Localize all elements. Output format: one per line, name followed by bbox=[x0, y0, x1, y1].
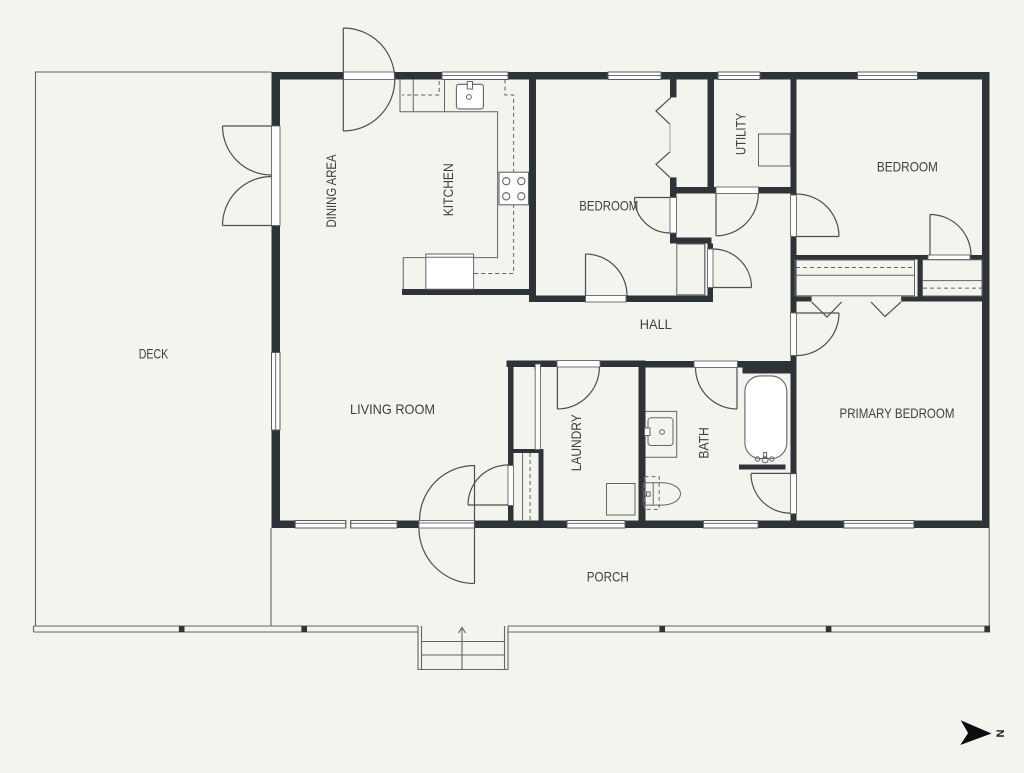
svg-text:BEDROOM: BEDROOM bbox=[579, 197, 638, 213]
svg-text:LAUNDRY: LAUNDRY bbox=[568, 414, 584, 472]
svg-text:LIVING ROOM: LIVING ROOM bbox=[350, 401, 435, 417]
svg-text:BEDROOM: BEDROOM bbox=[877, 159, 938, 175]
svg-text:HALL: HALL bbox=[640, 316, 672, 332]
svg-text:DECK: DECK bbox=[139, 346, 169, 362]
svg-text:KITCHEN: KITCHEN bbox=[440, 163, 456, 216]
svg-text:PRIMARY BEDROOM: PRIMARY BEDROOM bbox=[840, 405, 955, 421]
svg-text:DINING AREA: DINING AREA bbox=[323, 154, 339, 228]
svg-text:N: N bbox=[994, 730, 1006, 738]
svg-text:BATH: BATH bbox=[696, 427, 712, 459]
svg-text:UTILITY: UTILITY bbox=[733, 112, 749, 155]
svg-text:PORCH: PORCH bbox=[587, 569, 629, 585]
